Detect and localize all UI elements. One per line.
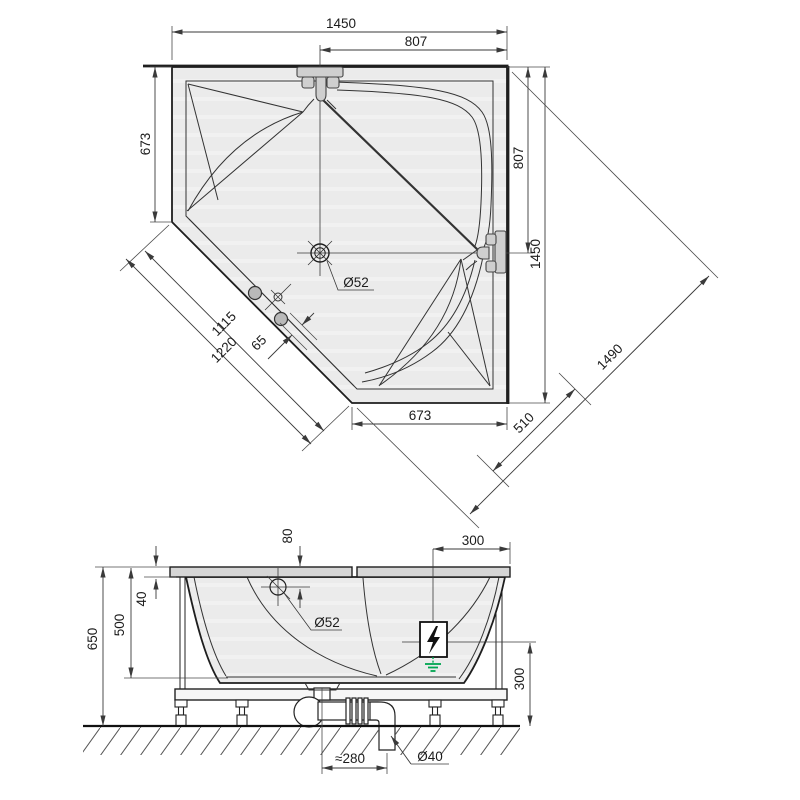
dim-label-faucet-offset-top: 807 (405, 34, 428, 49)
bathtub-technical-drawing: 1450 807 673 807 1450 673 (0, 0, 800, 800)
waste-pipe-diameter-label: Ø40 (417, 749, 443, 764)
dim-label-handle-offset: 65 (248, 332, 269, 353)
dim-label-diagonal-overall: 1490 (594, 341, 626, 373)
dim-label-connection-height: 300 (512, 668, 527, 691)
dim-label-inner-depth: 500 (112, 614, 127, 637)
frame-rail (175, 689, 507, 700)
dim-label-faucet-offset-right: 807 (511, 147, 526, 170)
dim-label-total-height: 650 (85, 628, 100, 651)
adjustable-leg (236, 700, 248, 726)
dim-label-front-edge-inner: 1115 (209, 309, 239, 339)
drawing-page: 1450 807 673 807 1450 673 (0, 0, 800, 800)
adjustable-leg (175, 700, 187, 726)
rim-deck-right (357, 567, 510, 577)
drain-diameter-label-side: Ø52 (314, 615, 340, 630)
jet-circle (249, 287, 262, 300)
floor (83, 726, 520, 755)
dim-connection-height: 300 (512, 643, 530, 726)
dim-overall-height: 1450 (509, 67, 550, 403)
dim-faucet-offset-right: 807 (506, 67, 550, 253)
rim-deck-left (170, 567, 352, 577)
dim-label-left-side: 673 (138, 133, 153, 156)
dim-left-side: 673 (138, 67, 172, 222)
dim-bottom-side: 673 (352, 407, 507, 430)
dim-label-front-edge-outer: 1220 (208, 334, 240, 366)
dim-label-bottom-side: 673 (409, 408, 432, 423)
dim-label-trap-offset: ≈280 (335, 751, 365, 766)
dim-label-corner-panel: 510 (511, 410, 538, 437)
tub-side-shell (186, 577, 505, 683)
dim-label-rim-thickness: 40 (134, 591, 149, 606)
side-view: Ø52 650 500 (83, 528, 536, 774)
floor-hatching (395, 727, 520, 755)
adjustable-leg (429, 700, 441, 726)
dim-total-height: 650 (85, 567, 170, 726)
dim-deck-width-right: 300 (433, 533, 510, 564)
top-view: 1450 807 673 807 1450 673 (120, 16, 718, 528)
dim-label-drain-below-rim: 80 (280, 528, 295, 543)
dim-label-overall-width: 1450 (326, 16, 356, 31)
dim-label-overall-height: 1450 (528, 239, 543, 269)
adjustable-leg (492, 700, 504, 726)
dim-faucet-offset-top: 807 (320, 34, 507, 50)
dim-overall-width: 1450 (172, 16, 507, 60)
tub-top-outline (143, 66, 509, 404)
frame-post-left (180, 577, 185, 689)
tub-side-body (170, 567, 510, 690)
dim-label-deck-width-right: 300 (462, 533, 485, 548)
drain-diameter-label-top: Ø52 (343, 275, 369, 290)
